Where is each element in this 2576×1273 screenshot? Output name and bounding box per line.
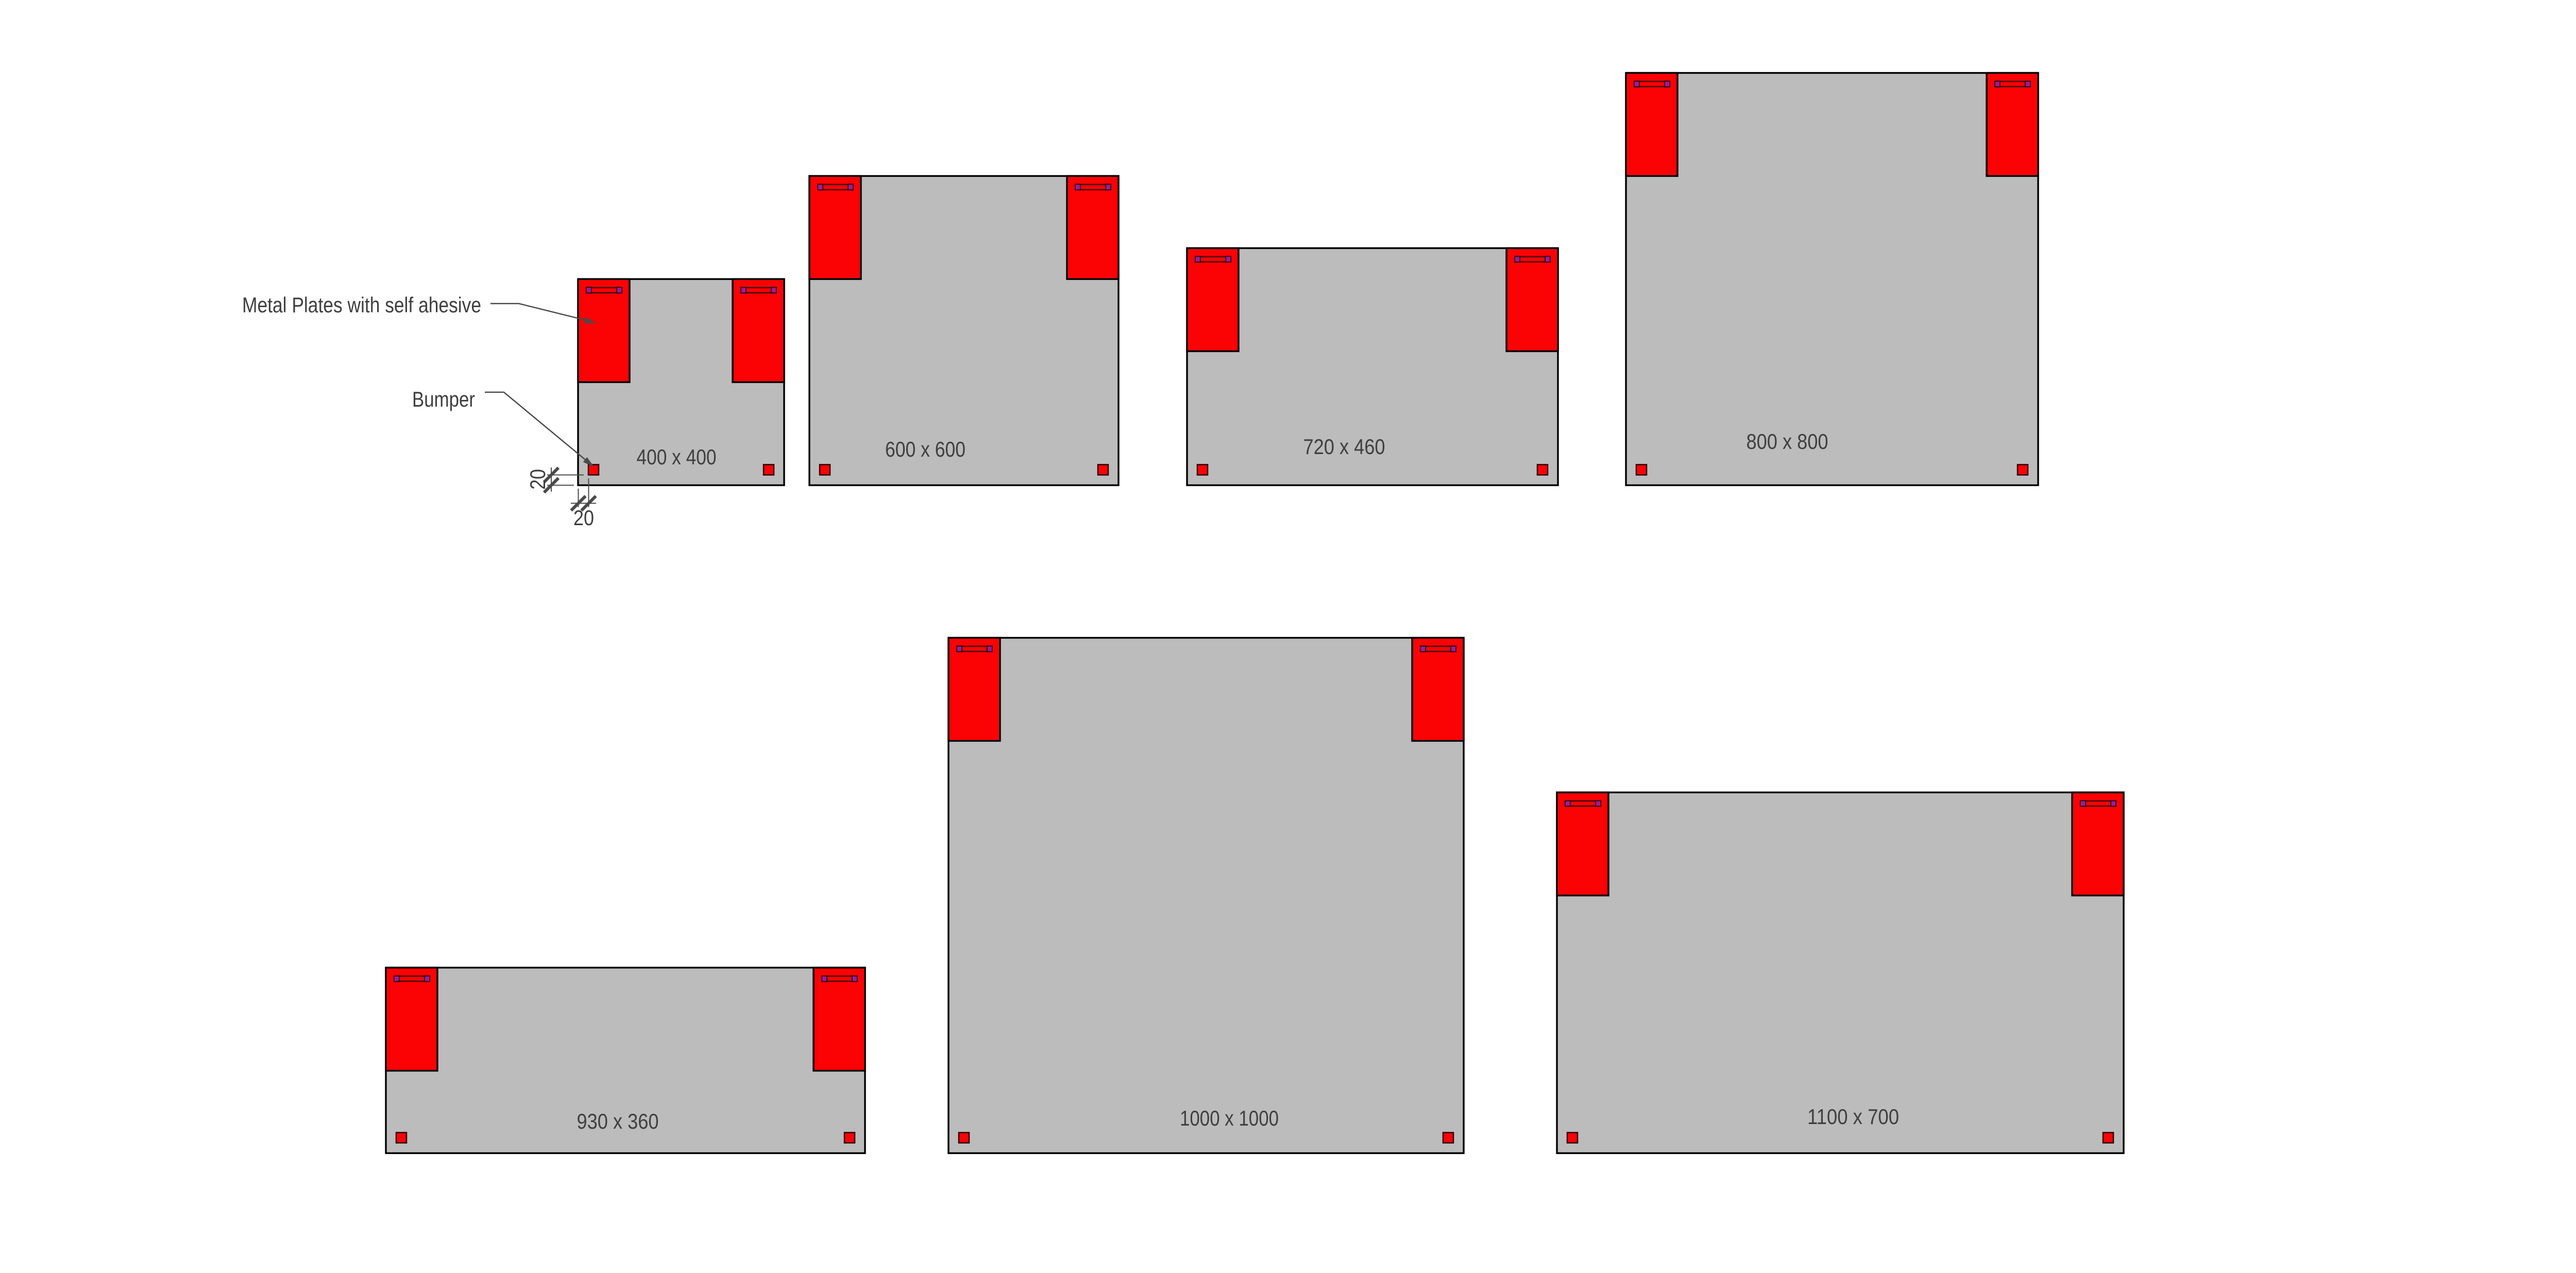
svg-text:20: 20 bbox=[573, 506, 594, 530]
svg-text:600 x 600: 600 x 600 bbox=[885, 437, 965, 461]
svg-text:930 x 360: 930 x 360 bbox=[577, 1109, 659, 1133]
svg-text:1000 x 1000: 1000 x 1000 bbox=[1180, 1106, 1279, 1130]
svg-text:1100 x 700: 1100 x 700 bbox=[1807, 1104, 1899, 1129]
svg-text:400 x 400: 400 x 400 bbox=[637, 445, 717, 469]
svg-text:800 x 800: 800 x 800 bbox=[1747, 429, 1828, 454]
svg-text:20: 20 bbox=[526, 469, 550, 490]
svg-text:720 x 460: 720 x 460 bbox=[1303, 434, 1385, 459]
svg-text:Bumper: Bumper bbox=[412, 387, 475, 411]
svg-text:Metal Plates with self ahesive: Metal Plates with self ahesive bbox=[242, 293, 481, 317]
